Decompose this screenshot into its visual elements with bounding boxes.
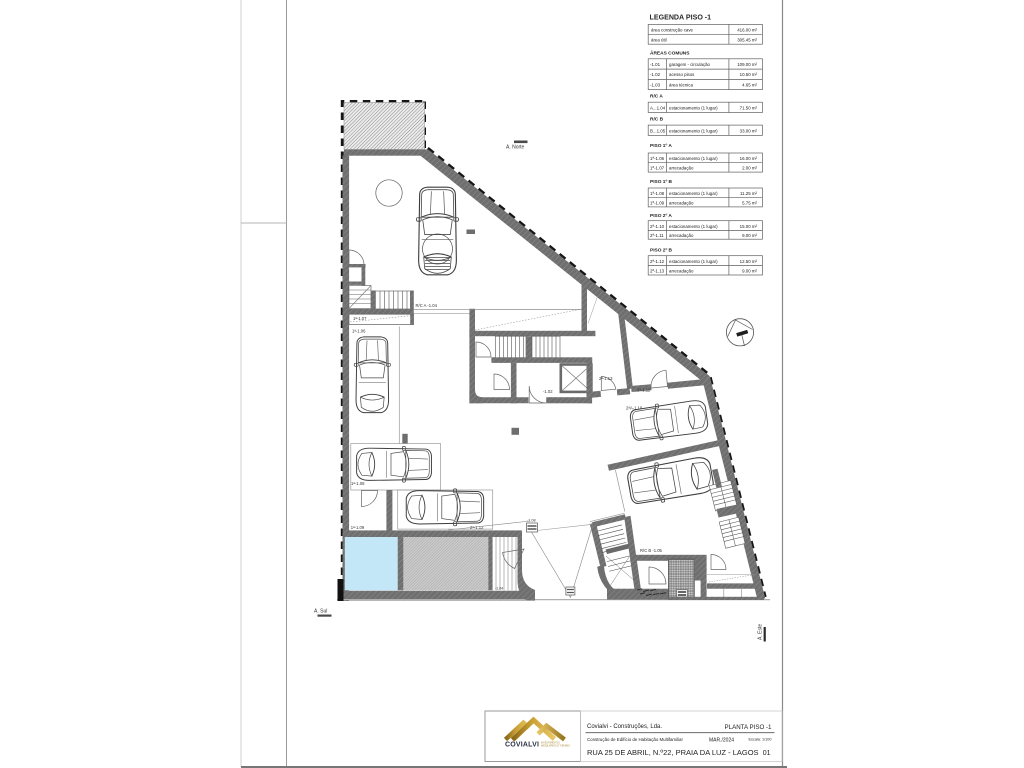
svg-text:A. Norte: A. Norte: [506, 145, 525, 151]
svg-text:Construção de Edifício de Habi: Construção de Edifício de Habitação Mult…: [587, 737, 683, 742]
svg-text:acesso pisos: acesso pisos: [669, 72, 695, 77]
svg-text:-1.02: -1.02: [650, 72, 661, 77]
svg-text:1ª-1.08: 1ª-1.08: [650, 191, 665, 196]
svg-text:416.00 m²: 416.00 m²: [737, 28, 757, 33]
svg-text:arrecadação: arrecadação: [669, 201, 694, 206]
svg-text:2ª-1.13: 2ª-1.13: [650, 268, 665, 273]
svg-text:ÁREAS COMUNS: ÁREAS COMUNS: [650, 50, 690, 57]
svg-text:COVIALVI: COVIALVI: [505, 741, 539, 748]
svg-text:A...1.04: A...1.04: [650, 105, 666, 110]
svg-text:arrecadação: arrecadação: [669, 166, 694, 171]
svg-text:LEGENDA PISO -1: LEGENDA PISO -1: [650, 14, 712, 22]
svg-text:área construção cave: área construção cave: [651, 28, 694, 33]
svg-text:estacionamento (1 lugar): estacionamento (1 lugar): [669, 191, 718, 196]
svg-text:2ª-1.11: 2ª-1.11: [650, 233, 664, 238]
svg-text:12.50 m²: 12.50 m²: [740, 259, 758, 264]
svg-text:2ª-1.11: 2ª-1.11: [637, 388, 651, 393]
svg-text:R/C B -1.05: R/C B -1.05: [640, 548, 663, 553]
svg-text:11.25 m²: 11.25 m²: [740, 191, 758, 196]
svg-text:A. Este: A. Este: [758, 624, 764, 640]
svg-text:estacionamento (1 lugar): estacionamento (1 lugar): [669, 105, 718, 110]
svg-text:-1.02: -1.02: [543, 389, 553, 394]
svg-text:A. Sul: A. Sul: [314, 609, 327, 615]
svg-text:-1.03: -1.03: [650, 83, 661, 88]
svg-text:1ª-1.06: 1ª-1.06: [650, 156, 665, 161]
svg-text:5.75 m²: 5.75 m²: [742, 201, 757, 206]
svg-text:2ª-1.12: 2ª-1.12: [650, 259, 665, 264]
svg-text:109.00 m²: 109.00 m²: [737, 62, 757, 67]
svg-text:PISO 1º A: PISO 1º A: [650, 143, 672, 149]
svg-text:Covialvi - Construções, Lda.: Covialvi - Construções, Lda.: [587, 724, 662, 730]
svg-text:B...1.05: B...1.05: [650, 128, 666, 133]
svg-text:área técnica: área técnica: [669, 83, 693, 88]
svg-text:33.00 m²: 33.00 m²: [740, 128, 758, 133]
svg-text:1ª-1.06: 1ª-1.06: [352, 329, 366, 334]
svg-text:-1.01: -1.01: [650, 62, 661, 67]
svg-text:arrecadação: arrecadação: [669, 233, 694, 238]
svg-text:estacionamento (1 lugar): estacionamento (1 lugar): [669, 259, 718, 264]
svg-text:MAR./2024: MAR./2024: [709, 738, 734, 744]
svg-text:2ª-1.13: 2ª-1.13: [599, 376, 613, 381]
svg-text:4.65 m²: 4.65 m²: [742, 83, 757, 88]
svg-text:1ª-1.07: 1ª-1.07: [650, 166, 665, 171]
svg-text:PLANTA PISO -1: PLANTA PISO -1: [725, 724, 773, 731]
svg-text:INVESTIMENTOS: INVESTIMENTOS: [541, 742, 560, 744]
svg-text:RUA 25 DE ABRIL, N.º22, PRAIA: RUA 25 DE ABRIL, N.º22, PRAIA DA LUZ - L…: [587, 748, 759, 757]
svg-text:R/C A -1.04: R/C A -1.04: [416, 303, 438, 308]
svg-text:arrecadação: arrecadação: [669, 268, 694, 273]
svg-text:-1.08: -1.08: [527, 519, 536, 523]
svg-text:2ª-1.10: 2ª-1.10: [650, 224, 665, 229]
svg-text:1ª-1.08: 1ª-1.08: [351, 481, 365, 486]
svg-text:Escala: 1/100: Escala: 1/100: [749, 738, 772, 742]
svg-text:1ª-1.09: 1ª-1.09: [351, 525, 365, 530]
svg-text:PISO 2º A: PISO 2º A: [650, 213, 672, 219]
svg-text:garagem - circulação: garagem - circulação: [669, 62, 711, 67]
svg-text:R/C A: R/C A: [650, 94, 663, 100]
svg-text:16.00 m²: 16.00 m²: [740, 156, 758, 161]
svg-text:1ª-1.07: 1ª-1.07: [353, 316, 367, 321]
svg-text:estacionamento (1 lugar): estacionamento (1 lugar): [669, 224, 718, 229]
svg-text:9.00 m²: 9.00 m²: [742, 233, 757, 238]
svg-text:1ª-1.09: 1ª-1.09: [650, 201, 665, 206]
svg-text:71.50 m²: 71.50 m²: [740, 105, 758, 110]
svg-text:15.00 m²: 15.00 m²: [740, 224, 758, 229]
svg-text:IMOBILIÁRIOS E TURISMO: IMOBILIÁRIOS E TURISMO: [541, 744, 570, 747]
svg-text:estacionamento (1 lugar): estacionamento (1 lugar): [669, 128, 718, 133]
svg-text:estacionamento (1 lugar): estacionamento (1 lugar): [669, 156, 718, 161]
svg-text:PISO 1º B: PISO 1º B: [650, 179, 673, 185]
svg-text:10.50 m²: 10.50 m²: [740, 72, 758, 77]
svg-text:305.45 m²: 305.45 m²: [737, 37, 757, 42]
svg-text:área útil: área útil: [651, 37, 667, 42]
svg-text:PISO 2º B: PISO 2º B: [650, 248, 673, 254]
svg-text:9.00 m²: 9.00 m²: [742, 268, 757, 273]
svg-text:R/C B: R/C B: [650, 117, 664, 123]
svg-text:01: 01: [763, 750, 771, 757]
svg-text:2.00 m²: 2.00 m²: [742, 166, 757, 171]
svg-text:-1.04: -1.04: [495, 587, 503, 591]
